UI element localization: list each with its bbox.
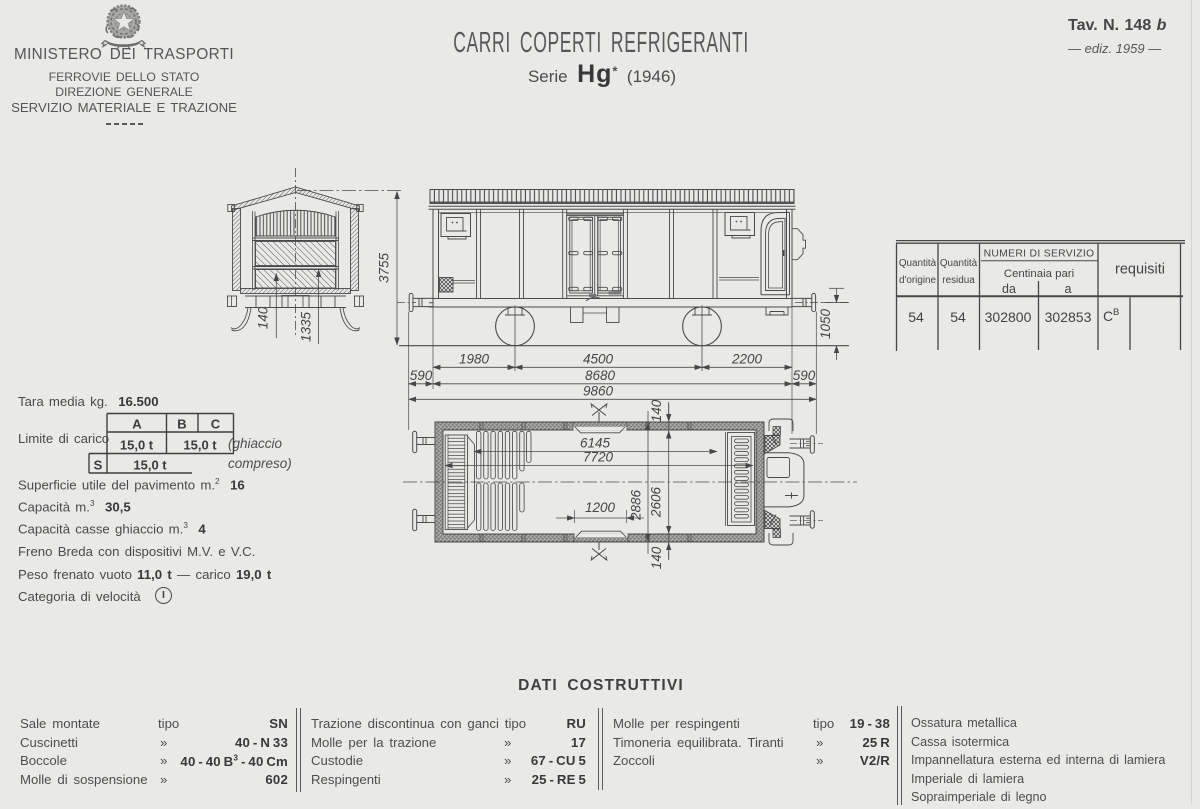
svg-text:C: C (211, 417, 221, 432)
svg-text:4500: 4500 (583, 352, 614, 367)
svg-text:requisiti: requisiti (1115, 262, 1165, 278)
svg-text:residua: residua (942, 275, 975, 286)
svg-text:2886: 2886 (629, 489, 644, 521)
svg-text:1335: 1335 (299, 311, 314, 342)
svg-text:NUMERI DI SERVIZIO: NUMERI DI SERVIZIO (984, 249, 1095, 260)
svg-text:B: B (177, 417, 186, 432)
svg-text:a: a (1065, 282, 1072, 296)
svg-text:1200: 1200 (585, 500, 616, 515)
svg-text:da: da (1002, 282, 1016, 296)
svg-text:C: C (1103, 308, 1113, 324)
svg-text:3755: 3755 (377, 252, 392, 283)
svg-text:15,0 t: 15,0 t (120, 438, 154, 453)
svg-text:6145: 6145 (580, 436, 611, 451)
svg-text:140: 140 (649, 546, 664, 569)
svg-text:54: 54 (950, 309, 966, 325)
svg-text:2606: 2606 (649, 486, 664, 518)
svg-text:8680: 8680 (585, 368, 616, 383)
svg-text:7720: 7720 (583, 450, 614, 465)
svg-text:1050: 1050 (818, 308, 833, 339)
svg-text:590: 590 (793, 368, 816, 383)
svg-text:A: A (132, 417, 142, 432)
svg-text:15,0 t: 15,0 t (183, 438, 217, 453)
svg-text:54: 54 (908, 309, 924, 325)
svg-text:9860: 9860 (583, 384, 614, 399)
svg-text:B: B (1113, 307, 1119, 318)
svg-text:2200: 2200 (731, 352, 763, 367)
svg-text:Centinaia pari: Centinaia pari (1004, 268, 1074, 280)
svg-text:302853: 302853 (1045, 309, 1092, 325)
svg-text:590: 590 (410, 368, 433, 383)
svg-text:d'origine: d'origine (899, 275, 937, 286)
svg-text:S: S (94, 458, 103, 473)
svg-text:140: 140 (256, 306, 271, 329)
svg-text:140: 140 (649, 399, 664, 422)
svg-text:302800: 302800 (985, 309, 1032, 325)
svg-text:Quantità: Quantità (899, 258, 937, 269)
svg-text:15,0 t: 15,0 t (133, 458, 167, 473)
svg-text:Quantità: Quantità (940, 258, 978, 269)
svg-text:1980: 1980 (459, 352, 490, 367)
